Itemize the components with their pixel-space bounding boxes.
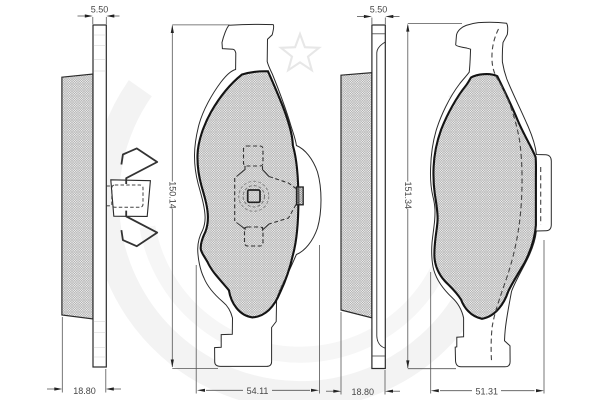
svg-text:150.14: 150.14 (167, 181, 177, 209)
svg-text:51.31: 51.31 (476, 387, 499, 397)
svg-text:18.80: 18.80 (73, 386, 96, 396)
svg-text:5.50: 5.50 (91, 4, 109, 14)
svg-text:151.34: 151.34 (403, 182, 413, 210)
svg-text:54.11: 54.11 (247, 386, 269, 396)
svg-text:5.50: 5.50 (370, 4, 388, 14)
svg-text:18.80: 18.80 (352, 387, 375, 397)
